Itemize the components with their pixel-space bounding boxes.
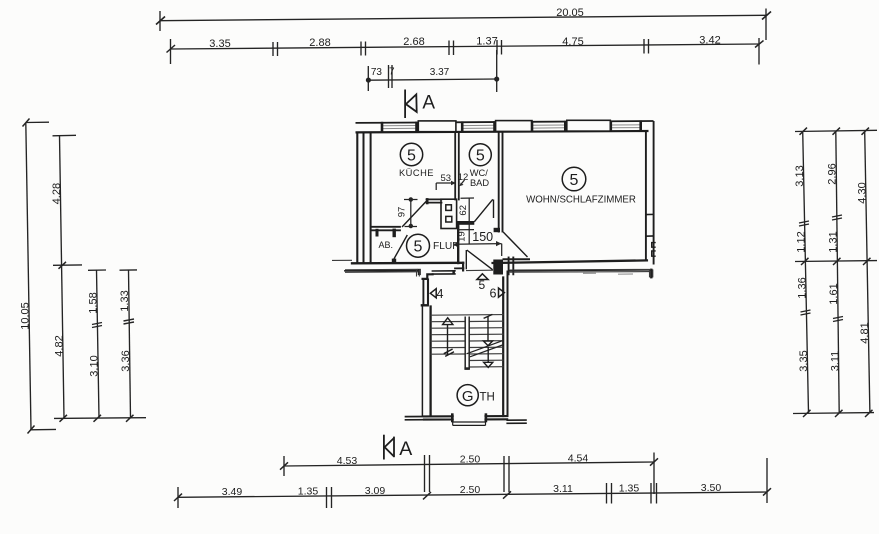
svg-text:A: A	[399, 438, 412, 460]
svg-text:3.37: 3.37	[430, 67, 450, 78]
svg-text:5: 5	[570, 172, 579, 189]
svg-text:TH: TH	[480, 392, 495, 404]
svg-text:1.12: 1.12	[796, 231, 808, 252]
svg-text:4: 4	[437, 287, 444, 301]
svg-text:5: 5	[414, 239, 423, 256]
svg-text:7: 7	[389, 67, 395, 78]
svg-text:1.37: 1.37	[476, 35, 497, 47]
svg-text:4.54: 4.54	[568, 452, 589, 464]
svg-text:4.81: 4.81	[859, 322, 871, 343]
svg-text:3.13: 3.13	[794, 165, 806, 186]
svg-text:19: 19	[457, 231, 468, 242]
svg-text:4.75: 4.75	[562, 36, 583, 48]
svg-text:1.35: 1.35	[298, 486, 319, 498]
svg-text:2.88: 2.88	[309, 37, 330, 49]
svg-text:WOHN/SCHLAFZIMMER: WOHN/SCHLAFZIMMER	[526, 194, 636, 205]
svg-text:73: 73	[371, 67, 383, 78]
svg-text:4.82: 4.82	[53, 335, 65, 356]
svg-text:1.31: 1.31	[828, 231, 840, 252]
svg-text:3.50: 3.50	[701, 482, 722, 494]
svg-text:12: 12	[458, 172, 469, 183]
svg-text:3.11: 3.11	[553, 483, 573, 495]
svg-text:1.36: 1.36	[796, 277, 808, 298]
svg-text:53: 53	[441, 173, 452, 184]
svg-text:1.35: 1.35	[619, 483, 640, 495]
svg-text:10.05: 10.05	[20, 302, 32, 330]
svg-text:3.09: 3.09	[365, 485, 386, 497]
svg-text:3.35: 3.35	[209, 38, 230, 50]
svg-text:97: 97	[396, 207, 407, 218]
svg-text:1.58: 1.58	[88, 292, 100, 313]
svg-text:BAD: BAD	[470, 178, 489, 188]
svg-text:150: 150	[472, 230, 493, 244]
svg-text:4.53: 4.53	[337, 455, 358, 467]
svg-text:20.05: 20.05	[556, 7, 584, 19]
svg-text:6: 6	[490, 286, 497, 300]
svg-text:5: 5	[407, 147, 416, 164]
svg-text:3.49: 3.49	[222, 486, 243, 498]
svg-text:1.61: 1.61	[828, 283, 840, 304]
svg-text:2.96: 2.96	[827, 163, 839, 184]
svg-text:2.68: 2.68	[403, 36, 424, 48]
svg-text:WC/: WC/	[470, 168, 488, 178]
svg-text:3.11: 3.11	[829, 351, 841, 372]
svg-text:62: 62	[458, 205, 469, 216]
svg-text:3.10: 3.10	[89, 355, 101, 376]
svg-text:3.42: 3.42	[699, 35, 720, 47]
svg-text:AB.: AB.	[379, 240, 394, 250]
svg-text:A: A	[422, 93, 435, 114]
svg-text:1.33: 1.33	[119, 290, 131, 311]
svg-text:3.35: 3.35	[798, 350, 810, 371]
svg-text:5: 5	[478, 278, 485, 292]
svg-text:2.50: 2.50	[460, 454, 481, 466]
svg-text:4.30: 4.30	[856, 182, 868, 203]
svg-text:2.50: 2.50	[460, 484, 481, 496]
svg-text:KÜCHE: KÜCHE	[399, 168, 434, 178]
svg-text:4.28: 4.28	[51, 183, 63, 204]
svg-text:G: G	[462, 388, 474, 405]
svg-text:3.36: 3.36	[120, 350, 132, 371]
svg-text:5: 5	[476, 147, 485, 164]
